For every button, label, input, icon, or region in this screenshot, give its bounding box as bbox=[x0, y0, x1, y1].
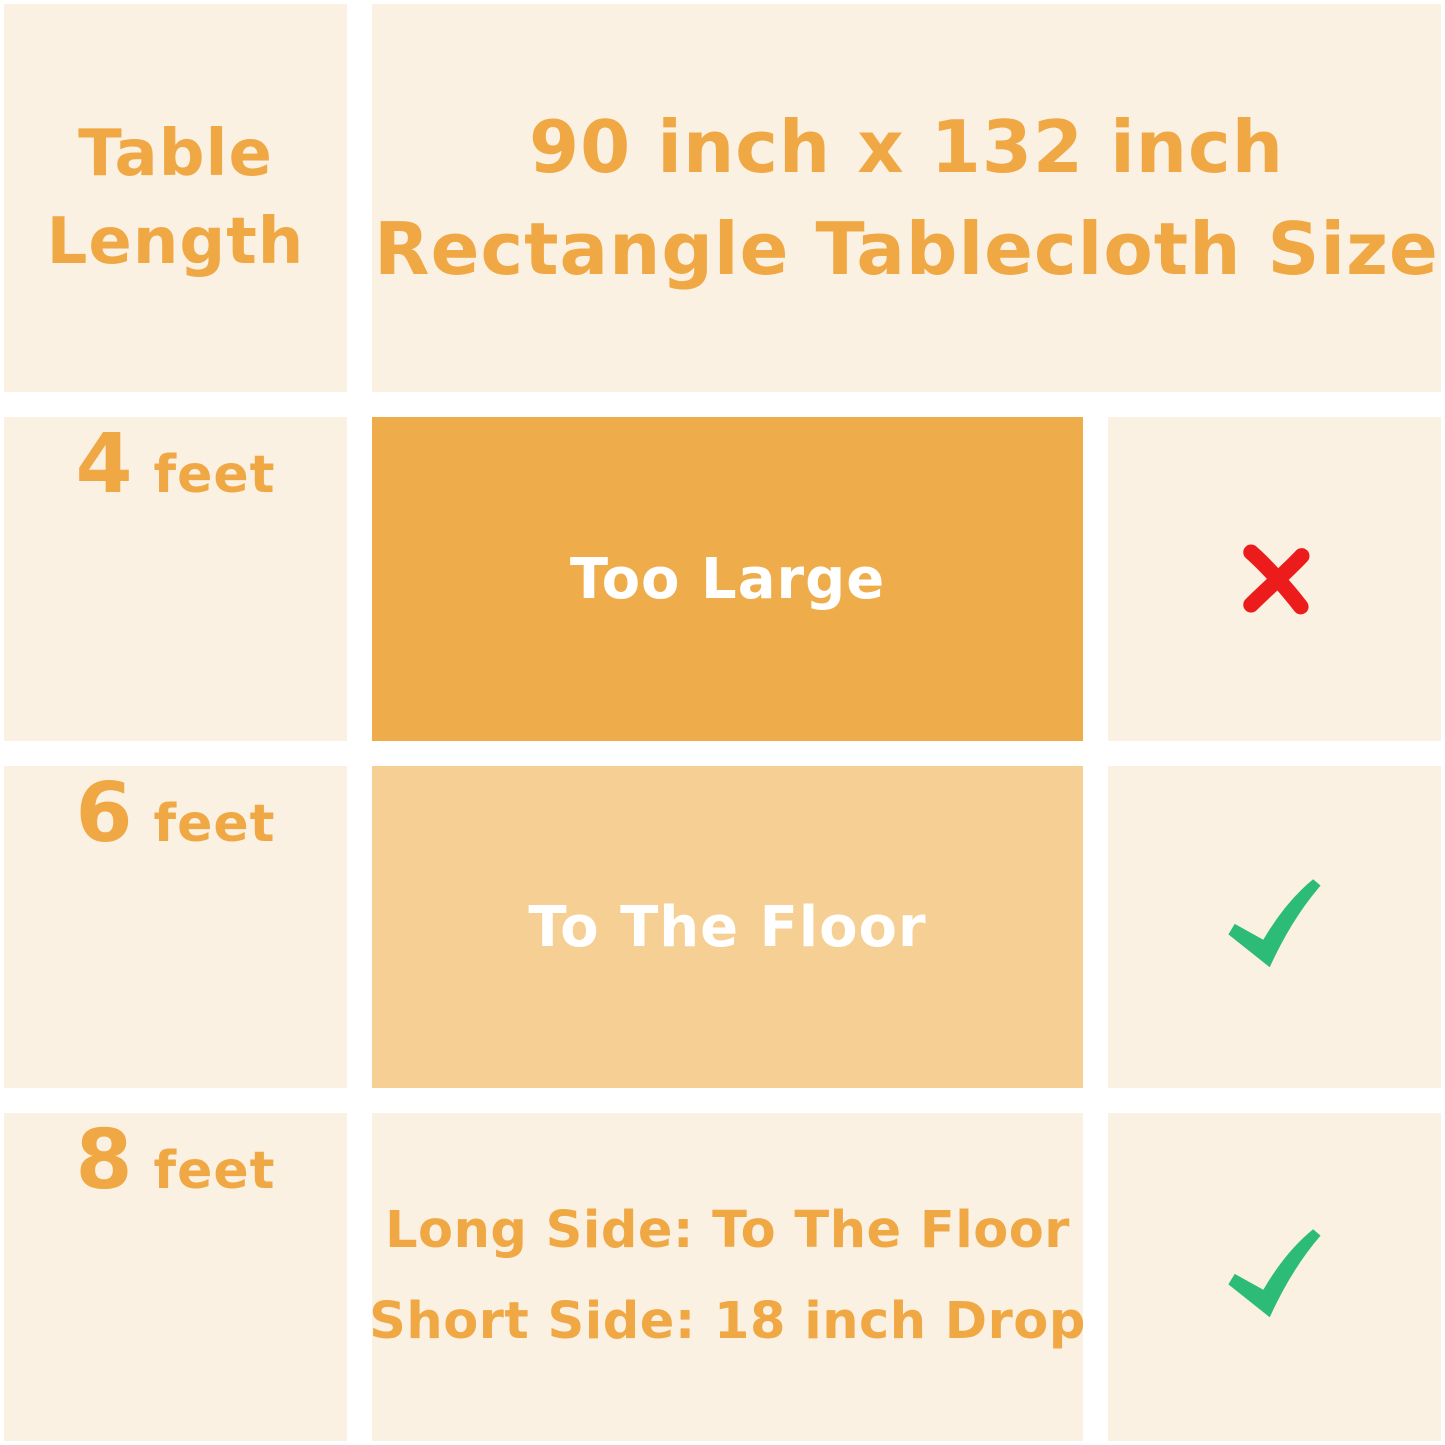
row-4ft-verdict-cell bbox=[1108, 417, 1441, 741]
length-unit: feet bbox=[154, 794, 276, 854]
row-4ft-fit-box: Too Large bbox=[372, 417, 1083, 741]
table-length-header-line2: Length bbox=[47, 198, 305, 286]
tablecloth-fit-table: Table Length 90 inch x 132 inch Rectangl… bbox=[0, 0, 1445, 1445]
length-number: 6 bbox=[75, 766, 133, 861]
tablecloth-size-header-line2: Rectangle Tablecloth Size bbox=[374, 198, 1439, 300]
table-length-header-line1: Table bbox=[78, 110, 273, 198]
row-6ft-length-cell: 6 feet bbox=[4, 766, 347, 1088]
column-header-table-length: Table Length bbox=[4, 4, 347, 392]
row-8ft-fit-cell: Long Side: To The Floor Short Side: 18 i… bbox=[372, 1113, 1083, 1441]
check-icon bbox=[1221, 1224, 1329, 1330]
fit-description-line2: Short Side: 18 inch Drop bbox=[369, 1277, 1086, 1368]
length-unit: feet bbox=[154, 1141, 276, 1201]
row-8ft-verdict-cell bbox=[1108, 1113, 1441, 1441]
fit-description: Too Large bbox=[570, 547, 885, 612]
tablecloth-size-header-line1: 90 inch x 132 inch bbox=[529, 96, 1284, 198]
row-8ft-length-cell: 8 feet bbox=[4, 1113, 347, 1441]
check-icon bbox=[1221, 874, 1329, 980]
fit-description: To The Floor bbox=[528, 895, 926, 960]
row-4ft-length-cell: 4 feet bbox=[4, 417, 347, 741]
length-unit: feet bbox=[154, 445, 276, 505]
cross-icon bbox=[1229, 533, 1321, 625]
fit-description-line1: Long Side: To The Floor bbox=[385, 1186, 1070, 1277]
row-6ft-verdict-cell bbox=[1108, 766, 1441, 1088]
length-number: 8 bbox=[75, 1113, 133, 1208]
column-header-tablecloth-size: 90 inch x 132 inch Rectangle Tablecloth … bbox=[372, 4, 1441, 392]
length-number: 4 bbox=[75, 417, 133, 512]
row-6ft-fit-box: To The Floor bbox=[372, 766, 1083, 1088]
